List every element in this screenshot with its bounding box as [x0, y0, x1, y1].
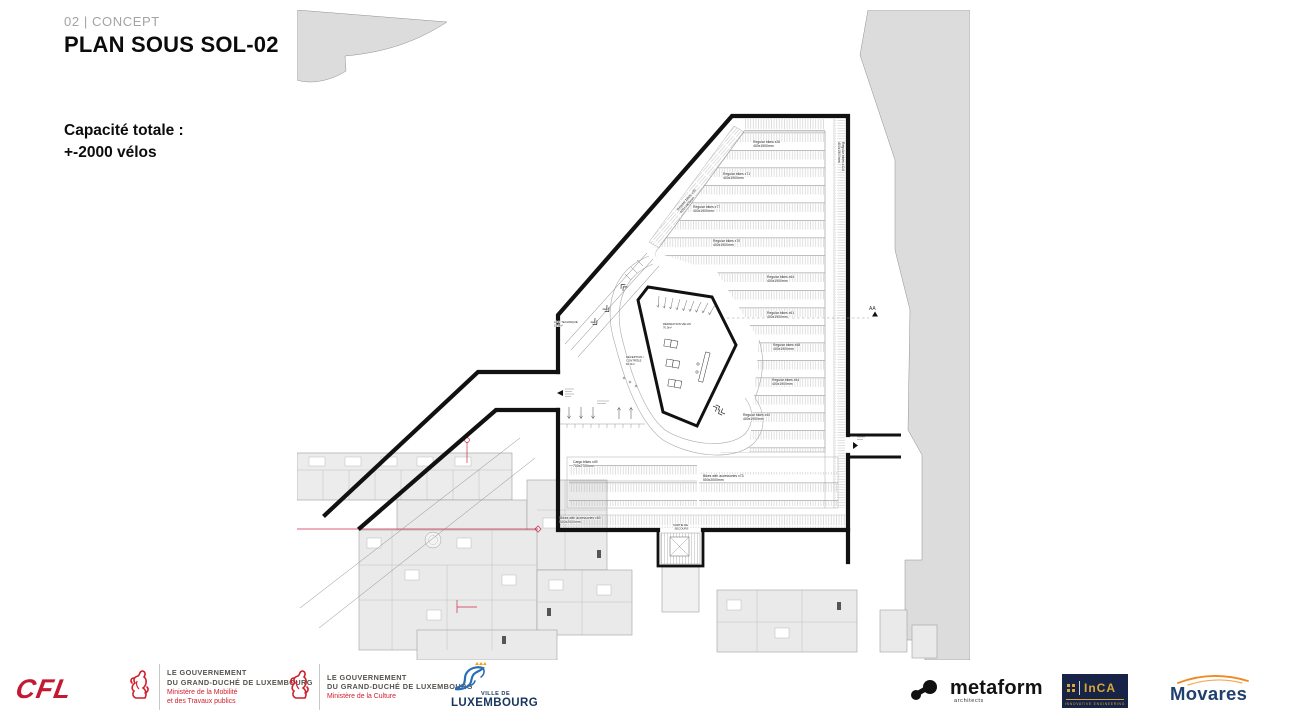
footer: CFL LE GOUVERNEMENT DU GRAND-DUCHÉ DE LU… — [0, 662, 1290, 725]
svg-text:400x1900mm: 400x1900mm — [693, 209, 714, 213]
divider — [319, 664, 320, 710]
svg-text:SECOURS: SECOURS — [675, 526, 689, 530]
gov-culture-logo: LE GOUVERNEMENT DU GRAND-DUCHÉ DE LUXEMB… — [288, 664, 473, 710]
cfl-logo: CFL — [13, 674, 74, 705]
svg-text:70.0m²: 70.0m² — [663, 326, 672, 330]
header: 02 | CONCEPT PLAN SOUS SOL-02 — [64, 14, 279, 58]
svg-text:84.0m²: 84.0m² — [626, 362, 635, 366]
metaform-name: metaform — [950, 678, 1043, 698]
capacity-line2: +-2000 vélos — [64, 142, 184, 164]
svg-text:19.0m²: 19.0m² — [554, 324, 563, 328]
metaform-icon — [906, 678, 950, 702]
ville-de-luxembourg-logo: VILLE DE LUXEMBOURG — [449, 662, 539, 720]
emergency-exit-shaft — [658, 530, 703, 566]
capacity-line1: Capacité totale : — [64, 120, 184, 142]
svg-text:500x2000mm: 500x2000mm — [703, 478, 724, 482]
metaform-sub: architects — [954, 698, 984, 704]
stand-row — [559, 401, 645, 428]
context-terrain-top — [297, 10, 447, 82]
movares-name: Movares — [1170, 683, 1247, 705]
presentation-slide: 02 | CONCEPT PLAN SOUS SOL-02 Capacité t… — [0, 0, 1290, 725]
movares-logo: Movares — [1170, 674, 1256, 708]
section-kicker: 02 | CONCEPT — [64, 14, 279, 29]
inca-name: InCA — [1084, 681, 1116, 695]
svg-text:400x1900mm: 400x1900mm — [723, 176, 744, 180]
inca-logo: InCA INNOVATIVE ENGINEERING — [1062, 674, 1128, 708]
svg-text:400x1900mm: 400x1900mm — [767, 315, 788, 319]
capacity-note: Capacité totale : +-2000 vélos — [64, 120, 184, 164]
svg-text:400x1900mm: 400x1900mm — [772, 382, 793, 386]
svg-text:400x1900mm: 400x1900mm — [773, 347, 794, 351]
luxembourg-lion-icon — [288, 669, 312, 705]
svg-text:400x1900mm: 400x1900mm — [837, 142, 841, 163]
gov-mobility-logo: LE GOUVERNEMENT DU GRAND-DUCHÉ DE LUXEMB… — [128, 664, 313, 710]
svg-text:500x2000mm: 500x2000mm — [560, 520, 581, 524]
divider — [1079, 681, 1080, 695]
svg-text:400x1900mm: 400x1900mm — [743, 417, 764, 421]
inca-squares-icon — [1067, 684, 1075, 692]
luxembourg-lion-icon — [128, 669, 152, 705]
vdl-line2: LUXEMBOURG — [451, 697, 538, 709]
section-label-aa: AA — [869, 306, 876, 312]
svg-text:400x1900mm: 400x1900mm — [767, 279, 788, 283]
context-terrain-right — [860, 10, 970, 660]
divider — [159, 664, 160, 710]
page-title: PLAN SOUS SOL-02 — [64, 32, 279, 58]
svg-text:400x1900mm: 400x1900mm — [753, 144, 774, 148]
metaform-logo: metaform architects — [906, 678, 1043, 702]
svg-text:400x1900mm: 400x1900mm — [713, 243, 734, 247]
inca-sub: INNOVATIVE ENGINEERING — [1062, 700, 1128, 708]
ville-lion-icon — [455, 662, 495, 692]
floor-plan-drawing: AA Regular bikes x26 400x1900mm Regular … — [297, 10, 970, 660]
svg-text:700x2700mm: 700x2700mm — [573, 464, 594, 468]
left-exit-marker — [557, 389, 574, 397]
